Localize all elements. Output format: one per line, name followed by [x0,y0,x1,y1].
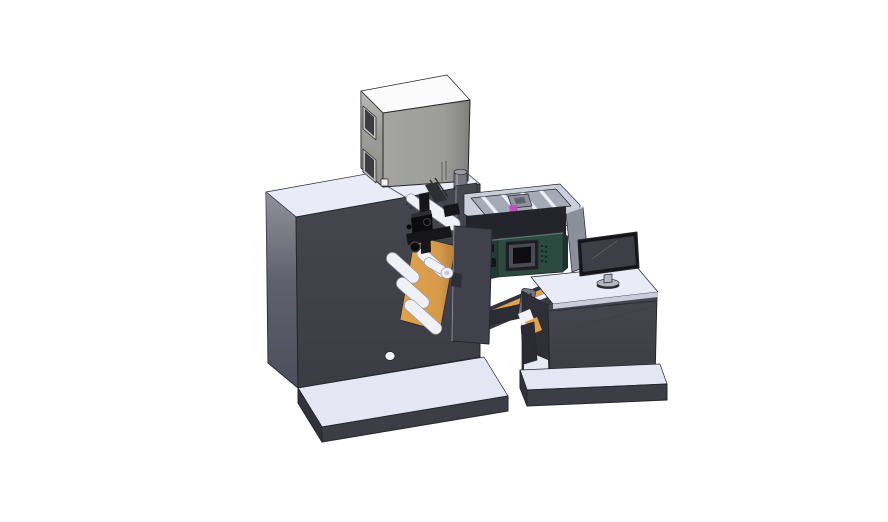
vent-dot [545,261,547,263]
cad-render-canvas [0,0,888,522]
print-engine [483,233,568,280]
tray-carriage-detail [514,197,526,204]
engine-display-screen [513,247,531,265]
vent-dot [541,250,543,252]
mech-pin [407,225,412,230]
electrical-cabinet [361,75,470,187]
engine-right-edge [563,233,568,272]
vent-dot [541,245,543,247]
mech-roller-knob [410,242,420,252]
machine-screw-dot-2 [410,207,412,209]
machine-screw-dot-1 [406,203,408,205]
vent-dot [541,260,543,262]
machine-left-face-shading [266,192,298,388]
vent-dot [545,251,547,253]
vent-dot [541,255,543,257]
monitor-neck [604,274,612,283]
machine-line-illustration [0,0,888,522]
knob-cap [454,169,467,175]
vent-dot [545,256,547,258]
vent-dot [545,246,547,248]
cabinet-corner-plate [381,179,388,186]
mech-roller-knob-small [424,219,431,226]
machine-front-hole [385,352,395,361]
conveyor-support-leg [521,322,537,364]
roller-end-core [445,271,450,275]
